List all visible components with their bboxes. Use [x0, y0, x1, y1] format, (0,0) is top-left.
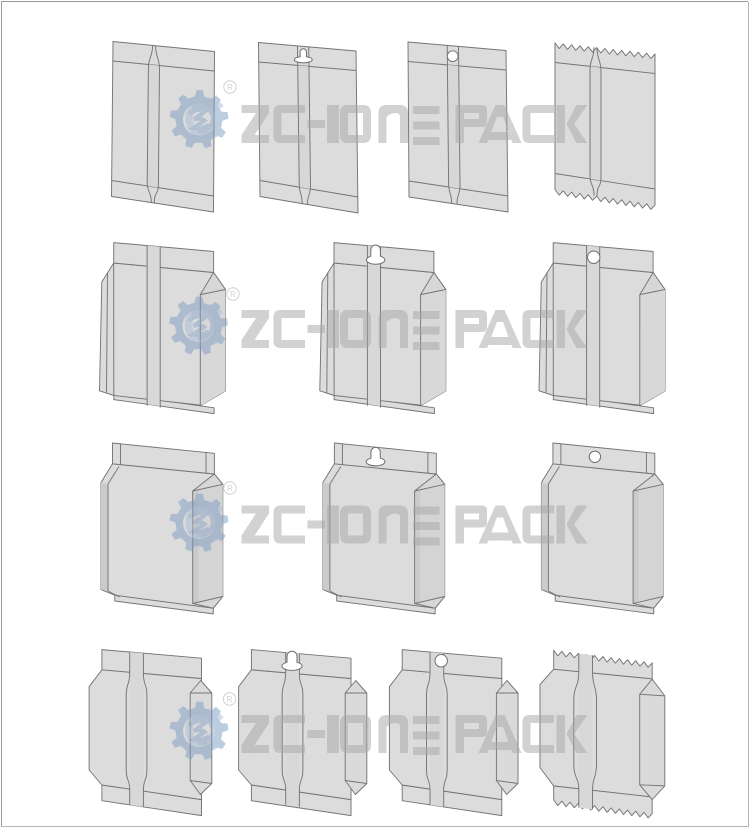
svg-text:R: R: [227, 83, 233, 92]
svg-text:R: R: [227, 695, 233, 704]
svg-text:R: R: [230, 290, 236, 299]
svg-text:R: R: [227, 484, 233, 493]
